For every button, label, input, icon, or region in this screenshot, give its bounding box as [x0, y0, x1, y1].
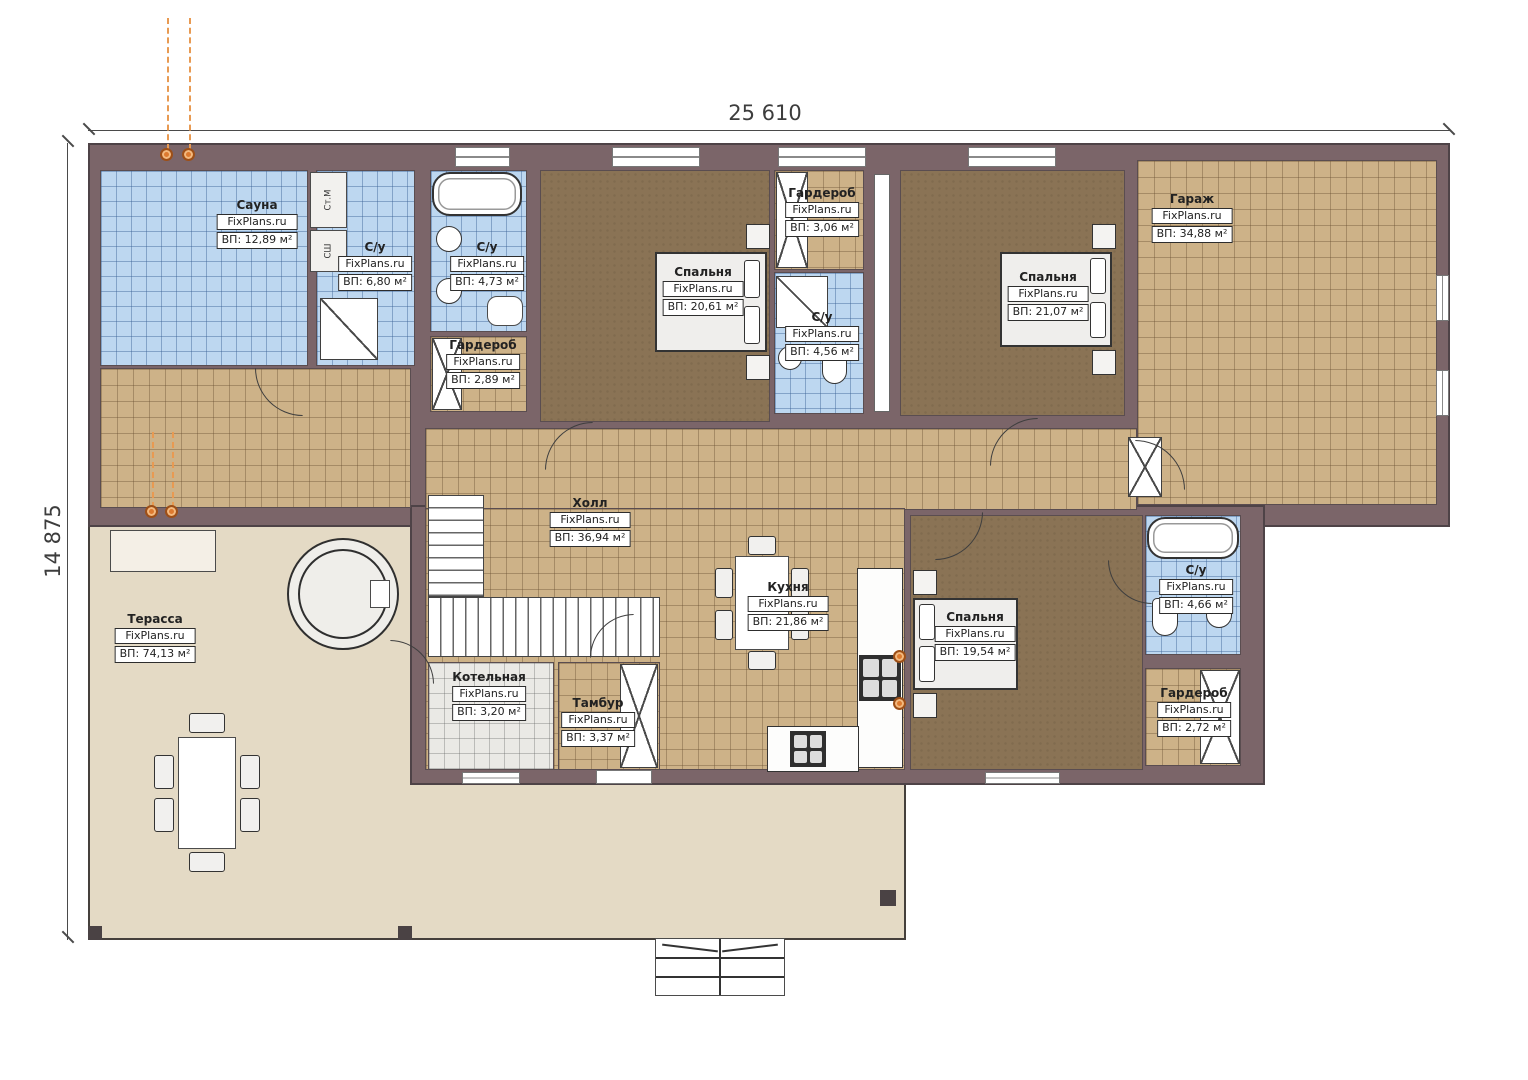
socket-icon [893, 650, 906, 663]
brand-link: FixPlans.ru [561, 712, 635, 728]
room-label-bathroom-680: С/у FixPlans.ru ВП: 6,80 м² [338, 240, 412, 291]
pillow-icon [919, 646, 935, 682]
shower-icon [320, 298, 378, 360]
chair-icon [240, 798, 260, 832]
window [462, 772, 520, 784]
dimension-tick [62, 135, 75, 148]
socket-icon [145, 505, 158, 518]
pillow-icon [744, 306, 760, 344]
room-label-terrace: Терасса FixPlans.ru ВП: 74,13 м² [115, 612, 196, 663]
room-label-bathroom-473: С/у FixPlans.ru ВП: 4,73 м² [450, 240, 524, 291]
room-label-kitchen: Кухня FixPlans.ru ВП: 21,86 м² [748, 580, 829, 631]
brand-link: FixPlans.ru [450, 256, 524, 272]
brand-link: FixPlans.ru [785, 202, 859, 218]
electrical-riser [152, 432, 154, 508]
terrace-post [398, 926, 412, 940]
dining-table [178, 737, 236, 849]
staircase-upper-flight [428, 495, 484, 597]
window [612, 147, 700, 167]
chair-icon [154, 798, 174, 832]
terrace-post [880, 890, 896, 906]
brand-link: FixPlans.ru [1157, 702, 1231, 718]
dimension-tick [62, 931, 75, 944]
bidet-icon [487, 296, 523, 326]
electrical-riser [189, 18, 191, 150]
room-label-bedroom-2061: Спальня FixPlans.ru ВП: 20,61 м² [663, 265, 744, 316]
electrical-riser [172, 432, 174, 508]
chair-icon [154, 755, 174, 789]
terrace-bench [110, 530, 216, 572]
chair-icon [189, 713, 225, 733]
nightstand-icon [746, 224, 770, 249]
nightstand-icon [913, 693, 937, 718]
dimension-height-label: 14 875 [41, 491, 63, 591]
chair-icon [748, 536, 776, 555]
dimension-tick [83, 123, 96, 136]
room-label-wardrobe-272: Гардероб FixPlans.ru ВП: 2,72 м² [1157, 686, 1231, 737]
room-label-garage: Гараж FixPlans.ru ВП: 34,88 м² [1152, 192, 1233, 243]
pillow-icon [744, 260, 760, 298]
nightstand-icon [1092, 350, 1116, 375]
brand-link: FixPlans.ru [452, 686, 526, 702]
pillow-icon [1090, 258, 1106, 294]
room-label-bedroom-2107: Спальня FixPlans.ru ВП: 21,07 м² [1008, 270, 1089, 321]
brand-link: FixPlans.ru [1152, 208, 1233, 224]
dimension-line-left [67, 143, 68, 940]
entrance-steps [655, 938, 785, 996]
nightstand-icon [913, 570, 937, 595]
entrance-door-opening [596, 770, 652, 784]
socket-icon [160, 148, 173, 161]
pillow-icon [919, 604, 935, 640]
dimension-width-label: 25 610 [728, 101, 801, 125]
brand-link: FixPlans.ru [1008, 286, 1089, 302]
nightstand-icon [1092, 224, 1116, 249]
floor-plan: 25 610 14 875 Ст.М СШ [0, 0, 1528, 1080]
nightstand-icon [746, 355, 770, 380]
room-label-bathroom-466: С/у FixPlans.ru ВП: 4,66 м² [1159, 563, 1233, 614]
chair-icon [748, 651, 776, 670]
chair-icon [240, 755, 260, 789]
room-label-sauna: Сауна FixPlans.ru ВП: 12,89 м² [217, 198, 298, 249]
brand-link: FixPlans.ru [748, 596, 829, 612]
room-label-vestibule: Тамбур FixPlans.ru ВП: 3,37 м² [561, 696, 635, 747]
hot-tub-step [370, 580, 390, 608]
brand-link: FixPlans.ru [338, 256, 412, 272]
brand-link: FixPlans.ru [935, 626, 1016, 642]
window [1436, 370, 1449, 416]
room-label-bedroom-1954: Спальня FixPlans.ru ВП: 19,54 м² [935, 610, 1016, 661]
socket-icon [893, 697, 906, 710]
room-label-wardrobe-289: Гардероб FixPlans.ru ВП: 2,89 м² [446, 338, 520, 389]
brand-link: FixPlans.ru [446, 354, 520, 370]
vent-shaft [874, 174, 890, 412]
brand-link: FixPlans.ru [550, 512, 631, 528]
brand-link: FixPlans.ru [663, 281, 744, 297]
kitchen-sink-icon [790, 731, 826, 767]
direction-arrow [662, 944, 718, 953]
washing-machine-icon: Ст.М [310, 172, 347, 228]
chair-icon [715, 568, 733, 598]
brand-link: FixPlans.ru [115, 628, 196, 644]
electrical-riser [167, 18, 169, 150]
terrace-post [88, 926, 102, 940]
floor-hall-left [100, 368, 411, 508]
bathtub-icon [1147, 517, 1239, 559]
pillow-icon [1090, 302, 1106, 338]
window [455, 147, 510, 167]
dimension-tick [1443, 123, 1456, 136]
brand-link: FixPlans.ru [1159, 579, 1233, 595]
bathtub-icon [432, 172, 522, 216]
room-label-wardrobe-306: Гардероб FixPlans.ru ВП: 3,06 м² [785, 186, 859, 237]
chair-icon [189, 852, 225, 872]
socket-icon [165, 505, 178, 518]
room-label-boiler: Котельная FixPlans.ru ВП: 3,20 м² [452, 670, 526, 721]
window [968, 147, 1056, 167]
window [1436, 275, 1449, 321]
socket-icon [182, 148, 195, 161]
room-label-bathroom-456: С/у FixPlans.ru ВП: 4,56 м² [785, 310, 859, 361]
direction-arrow [722, 944, 778, 953]
brand-link: FixPlans.ru [217, 214, 298, 230]
stove-icon [859, 655, 901, 701]
brand-link: FixPlans.ru [785, 326, 859, 342]
room-label-hall: Холл FixPlans.ru ВП: 36,94 м² [550, 496, 631, 547]
chair-icon [715, 610, 733, 640]
window [985, 772, 1060, 784]
dimension-line-top [88, 130, 1450, 131]
window [778, 147, 866, 167]
